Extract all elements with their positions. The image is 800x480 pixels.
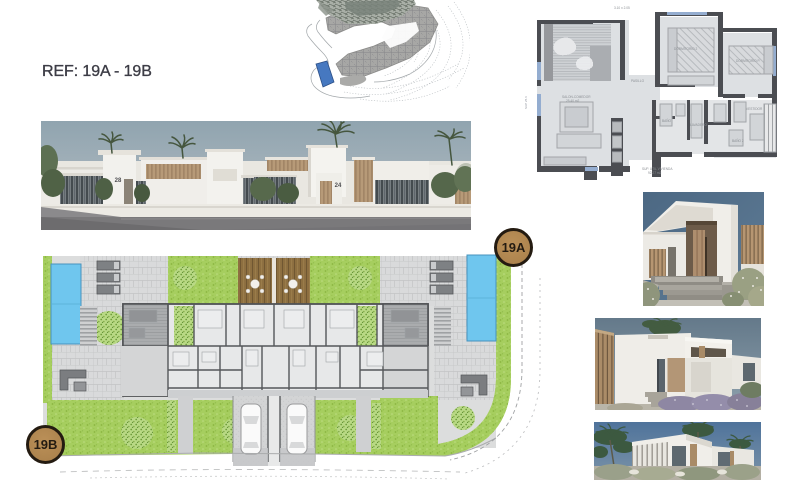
svg-text:PASILLO: PASILLO bbox=[631, 79, 645, 83]
svg-text:DORMITORIO P.: DORMITORIO P. bbox=[736, 59, 760, 63]
svg-text:25.40 m2: 25.40 m2 bbox=[566, 99, 580, 103]
svg-text:92.27 m2: 92.27 m2 bbox=[648, 171, 662, 175]
svg-text:VESTIDOR: VESTIDOR bbox=[746, 107, 763, 111]
svg-text:DORMITORIO 2: DORMITORIO 2 bbox=[674, 47, 698, 51]
svg-text:BAÑO 2: BAÑO 2 bbox=[732, 138, 744, 143]
svg-text:3.10 x 2.05: 3.10 x 2.05 bbox=[614, 6, 630, 10]
svg-text:BAÑO: BAÑO bbox=[662, 118, 672, 123]
svg-text:28: 28 bbox=[115, 178, 122, 184]
svg-text:SUP 25.6: SUP 25.6 bbox=[524, 96, 528, 109]
svg-text:LAVADERO: LAVADERO bbox=[690, 123, 707, 127]
svg-text:24: 24 bbox=[335, 183, 342, 189]
